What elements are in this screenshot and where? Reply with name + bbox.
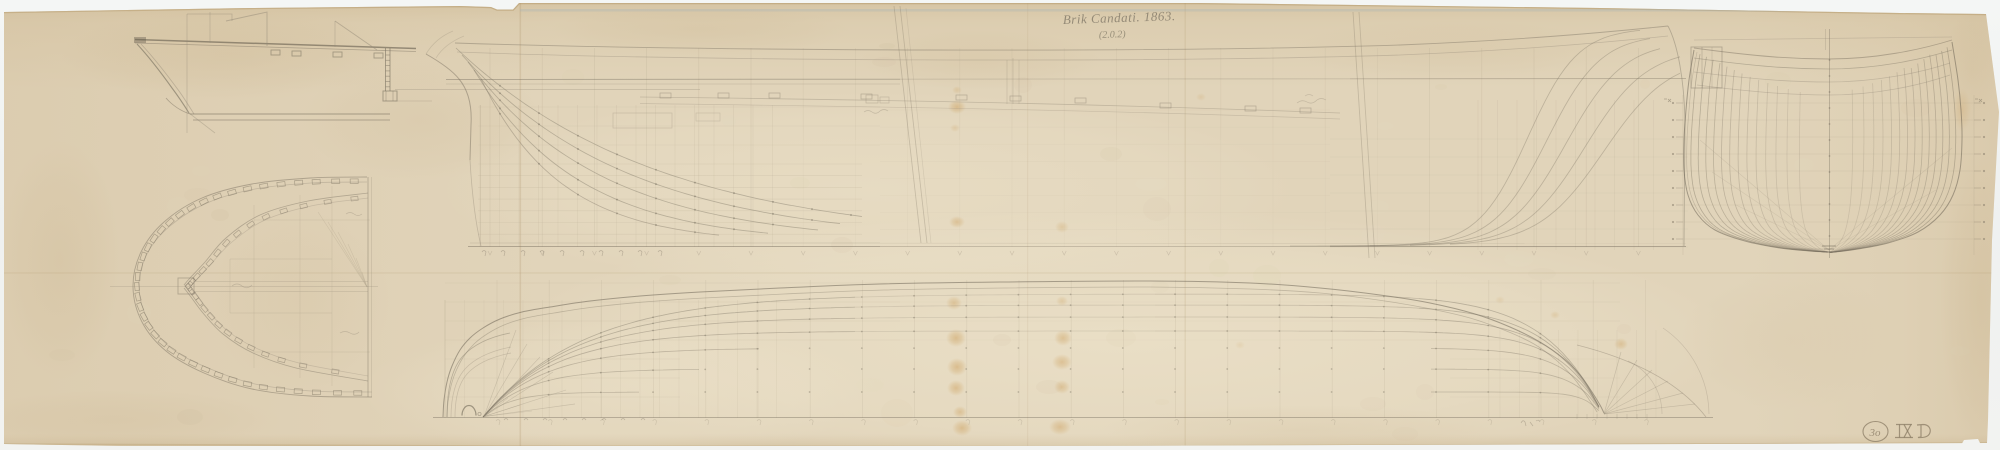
svg-text:3o: 3o bbox=[1869, 427, 1882, 439]
svg-text:(2.0.2): (2.0.2) bbox=[1099, 29, 1127, 41]
